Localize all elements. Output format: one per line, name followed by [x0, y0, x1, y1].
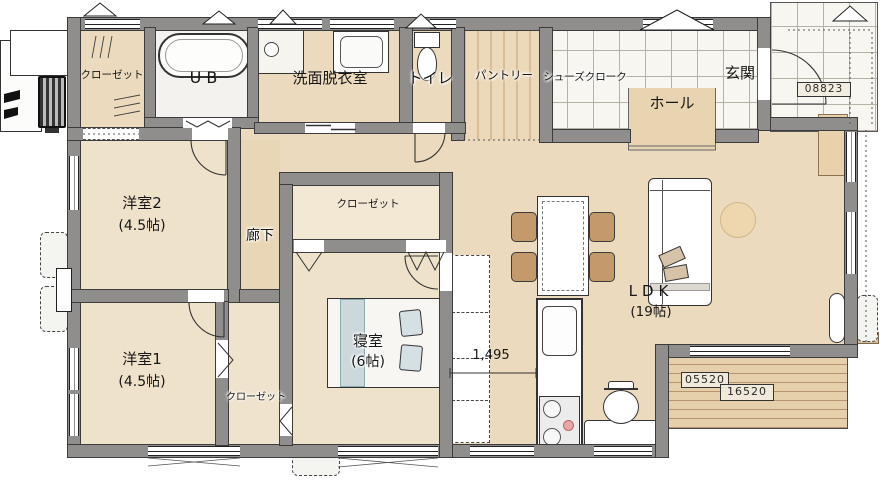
heat-pump-foot [45, 128, 59, 133]
window [69, 394, 79, 436]
door-opening [192, 128, 228, 140]
stove-burner-1 [543, 400, 561, 418]
room-label-corridor: 廊下 [234, 229, 286, 244]
window [594, 446, 652, 456]
washbasin-bowl [264, 42, 279, 57]
wall [248, 28, 258, 128]
closet-open-hanging-wall [83, 128, 139, 140]
room-south-closet-floor [228, 302, 280, 445]
stove-burner-small [563, 420, 574, 431]
window [846, 132, 856, 182]
wall [758, 18, 770, 48]
closet-opening [280, 404, 292, 436]
wall [280, 173, 452, 185]
sliding-window [338, 446, 438, 456]
window [430, 19, 456, 29]
water-heater-tank [10, 30, 68, 76]
porch-tile [770, 2, 878, 132]
window [846, 212, 856, 274]
ac-indoor-unit-right [829, 293, 845, 343]
window [330, 19, 394, 29]
wall [68, 18, 80, 457]
room-size-ldk: (19帖) [604, 305, 698, 320]
washing-machine-drum [340, 36, 383, 68]
toilet-tank [414, 32, 440, 48]
wall [228, 128, 240, 302]
room-label-genkan: 玄関 [712, 65, 768, 82]
room-label-south-closet: クローゼット [214, 392, 298, 403]
room-label-ldk: LDK [604, 283, 698, 300]
room-label-toilet: トイレ [396, 70, 464, 87]
folding-door-opening [183, 118, 232, 128]
sofa-armrest-line [650, 190, 710, 191]
room-label-youshitsu1: 洋室1 [88, 351, 196, 368]
dining-chair-1 [511, 212, 537, 242]
stool-backrest-brim [604, 388, 638, 390]
porch-dimension-stamp: 08823 [797, 82, 851, 97]
deck-dimension-stamp-b: 16520 [720, 384, 774, 401]
wall [540, 28, 552, 142]
window [258, 19, 322, 29]
room-label-bedroom: 寝室 [328, 333, 408, 350]
door-opening [440, 253, 452, 291]
window [148, 446, 240, 456]
window [69, 348, 79, 390]
closet-opening [294, 240, 324, 252]
dimension-kitchen-pass: 1,495 [460, 349, 522, 363]
room-label-pantry: パントリー [460, 69, 548, 82]
closet-opening [406, 240, 446, 252]
window [470, 446, 534, 456]
stove-burner-2 [543, 428, 561, 446]
wall [540, 130, 630, 142]
room-label-hall: ホール [632, 95, 712, 112]
cupboard-divider-3 [452, 400, 488, 401]
room-label-closet-nw: クローゼット [74, 70, 150, 82]
window [643, 19, 713, 29]
kitchen-sink [542, 306, 577, 356]
corridor-floor [240, 140, 280, 290]
room-size-youshitsu1: (4.5帖) [82, 375, 202, 390]
room-youshitsu2-floor [80, 140, 228, 290]
room-label-youshitsu2: 洋室2 [88, 195, 196, 212]
wall [716, 130, 758, 142]
room-size-bedroom: (6帖) [328, 355, 408, 370]
sliding-door-opening [305, 123, 355, 133]
door-opening [413, 123, 445, 133]
cupboard-divider-1 [452, 312, 488, 313]
wall [656, 345, 668, 457]
window [69, 156, 79, 210]
heat-pump-unit [38, 76, 66, 128]
room-label-bedroom-closet: クローゼット [326, 199, 410, 211]
closet-opening [216, 340, 228, 378]
dining-chair-3 [589, 212, 615, 242]
room-label-washroom: 洗面脱衣室 [268, 70, 392, 87]
floor-plan: クローゼット UB 洗面脱衣室 トイレ パントリー シューズクローク 玄関 ホー… [0, 0, 883, 483]
dining-chair-2 [511, 252, 537, 282]
room-label-shoes-cloak: シューズクローク [538, 72, 632, 84]
room-label-ub: UB [178, 69, 234, 87]
wall [440, 173, 452, 457]
deck-sliding-door [690, 346, 790, 356]
window [85, 19, 140, 29]
wall [758, 100, 770, 130]
door-opening [188, 290, 224, 302]
dining-table-inner [542, 201, 584, 291]
wall [758, 118, 857, 130]
bay-window [56, 268, 72, 312]
dining-chair-4 [589, 252, 615, 282]
room-size-youshitsu2: (4.5帖) [82, 219, 202, 234]
side-table [720, 202, 756, 238]
stool-seat [603, 390, 639, 424]
ac-outdoor-unit-right [857, 295, 878, 342]
pantry-floor [464, 28, 540, 140]
room-bedroom-closet-floor [292, 185, 440, 240]
